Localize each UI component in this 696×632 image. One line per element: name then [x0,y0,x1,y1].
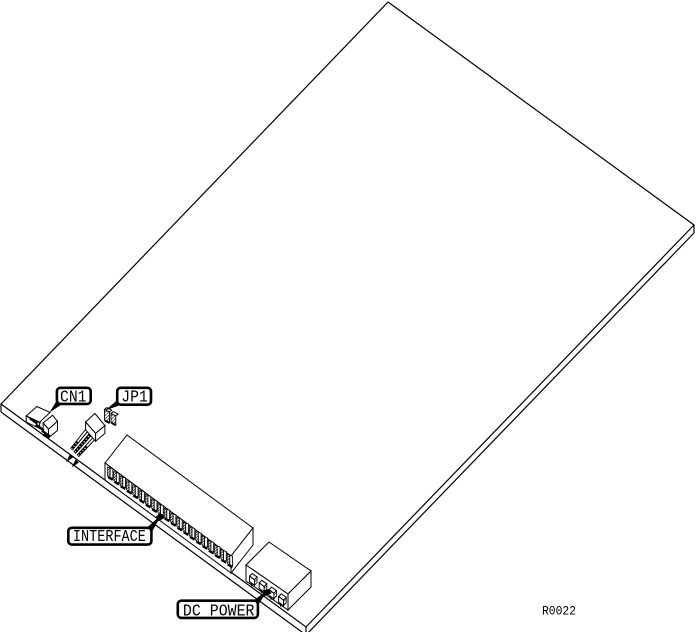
svg-text:DC POWER: DC POWER [183,601,255,620]
svg-text:CN1: CN1 [60,388,87,407]
svg-text:INTERFACE: INTERFACE [73,527,146,546]
svg-text:JP1: JP1 [121,388,148,407]
svg-text:R0022: R0022 [542,605,576,619]
